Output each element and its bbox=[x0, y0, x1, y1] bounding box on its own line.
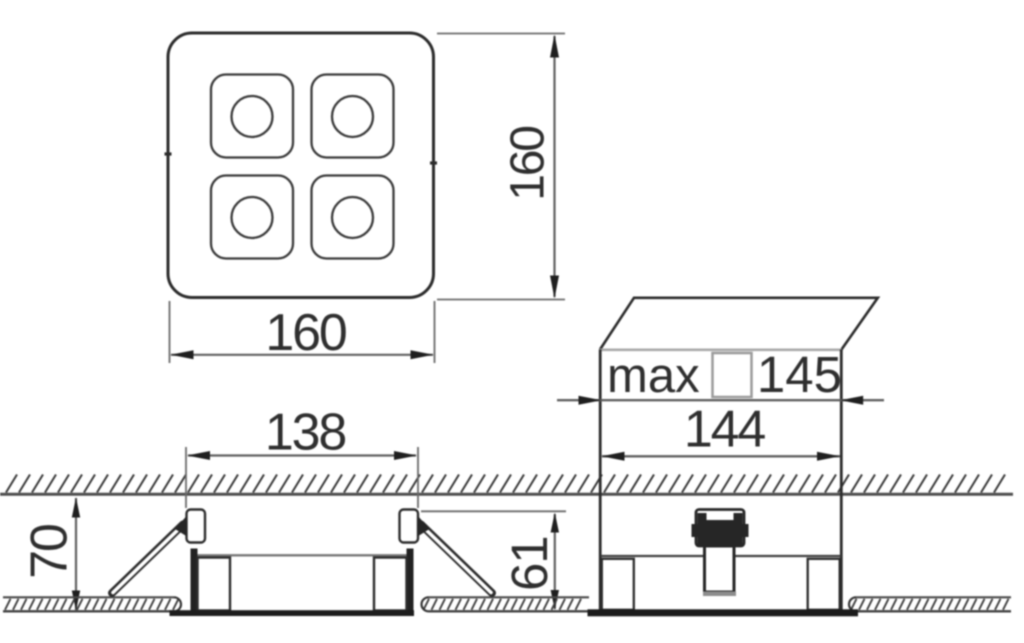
svg-text:138: 138 bbox=[265, 403, 345, 461]
svg-text:160: 160 bbox=[502, 127, 555, 201]
svg-text:144: 144 bbox=[684, 401, 765, 459]
svg-text:145: 145 bbox=[757, 346, 842, 403]
svg-text:max: max bbox=[607, 349, 700, 403]
svg-text:160: 160 bbox=[265, 304, 345, 362]
svg-text:70: 70 bbox=[21, 525, 79, 579]
svg-text:61: 61 bbox=[501, 536, 558, 591]
